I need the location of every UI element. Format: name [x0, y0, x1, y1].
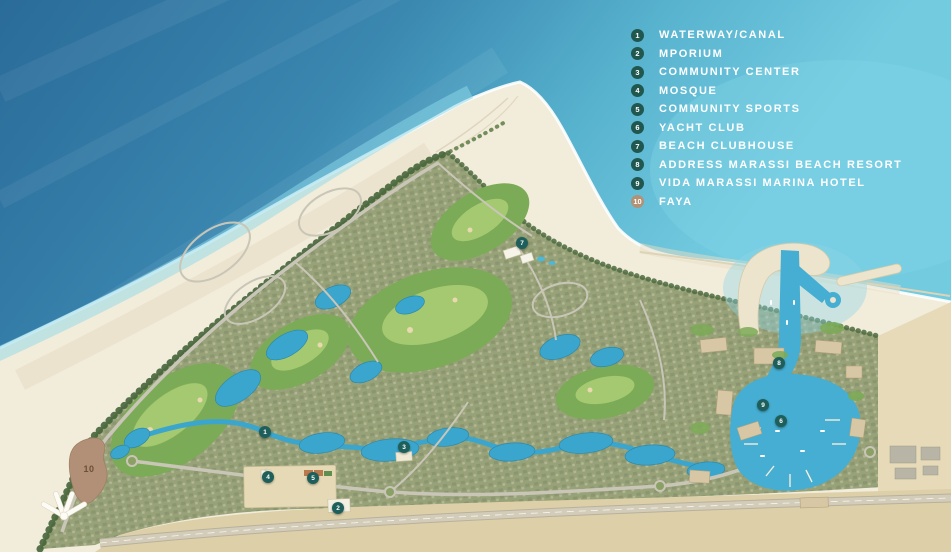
- legend-marker-8-icon: 8: [631, 158, 644, 171]
- legend-marker-3-icon: 3: [631, 66, 644, 79]
- map-marker-yacht-club[interactable]: 6: [775, 415, 787, 427]
- legend-label-address-beach-resort: ADDRESS MARASSI BEACH RESORT: [659, 159, 902, 171]
- legend-label-community-center: COMMUNITY CENTER: [659, 66, 801, 78]
- legend-label-community-sports: COMMUNITY SPORTS: [659, 103, 801, 115]
- legend-item-community-center: 3 COMMUNITY CENTER: [631, 66, 902, 78]
- map-marker-beach-clubhouse[interactable]: 7: [516, 237, 528, 249]
- legend-marker-7-icon: 7: [631, 140, 644, 153]
- legend-item-waterway-canal: 1 WATERWAY/CANAL: [631, 29, 902, 41]
- legend-item-mosque: 4 MOSQUE: [631, 85, 902, 97]
- legend-label-beach-clubhouse: BEACH CLUBHOUSE: [659, 140, 795, 152]
- map-marker-mporium[interactable]: 2: [332, 502, 344, 514]
- legend-item-community-sports: 5 COMMUNITY SPORTS: [631, 103, 902, 115]
- legend-marker-9-icon: 9: [631, 177, 644, 190]
- map-marker-vida-marina-hotel[interactable]: 9: [757, 399, 769, 411]
- legend-label-waterway-canal: WATERWAY/CANAL: [659, 29, 786, 41]
- legend-item-address-beach-resort: 8 ADDRESS MARASSI BEACH RESORT: [631, 159, 902, 171]
- legend-item-vida-marina-hotel: 9 VIDA MARASSI MARINA HOTEL: [631, 177, 902, 189]
- legend-item-beach-clubhouse: 7 BEACH CLUBHOUSE: [631, 140, 902, 152]
- legend-item-faya: 10 FAYA: [631, 196, 902, 208]
- legend-item-yacht-club: 6 YACHT CLUB: [631, 122, 902, 134]
- legend-marker-1-icon: 1: [631, 29, 644, 42]
- legend-label-vida-marina-hotel: VIDA MARASSI MARINA HOTEL: [659, 177, 866, 189]
- legend-marker-2-icon: 2: [631, 47, 644, 60]
- map-marker-community-sports[interactable]: 5: [307, 472, 319, 484]
- map-label-faya[interactable]: 10: [83, 464, 94, 474]
- map-marker-address-beach-resort[interactable]: 8: [773, 357, 785, 369]
- legend-marker-6-icon: 6: [631, 121, 644, 134]
- legend-marker-5-icon: 5: [631, 103, 644, 116]
- legend-marker-10-icon: 10: [631, 195, 644, 208]
- map-marker-mosque[interactable]: 4: [262, 471, 274, 483]
- legend-label-yacht-club: YACHT CLUB: [659, 122, 746, 134]
- map-marker-community-center[interactable]: 3: [398, 441, 410, 453]
- legend-label-mosque: MOSQUE: [659, 85, 718, 97]
- legend-label-faya: FAYA: [659, 196, 693, 208]
- masterplan-screenshot: 1 2 3 4 5 6 7 8 9 10 1 WATERWAY/CANAL 2 …: [0, 0, 951, 552]
- map-marker-waterway-canal[interactable]: 1: [259, 426, 271, 438]
- legend-label-mporium: MPORIUM: [659, 48, 723, 60]
- legend: 1 WATERWAY/CANAL 2 MPORIUM 3 COMMUNITY C…: [631, 29, 902, 208]
- legend-item-mporium: 2 MPORIUM: [631, 48, 902, 60]
- legend-marker-4-icon: 4: [631, 84, 644, 97]
